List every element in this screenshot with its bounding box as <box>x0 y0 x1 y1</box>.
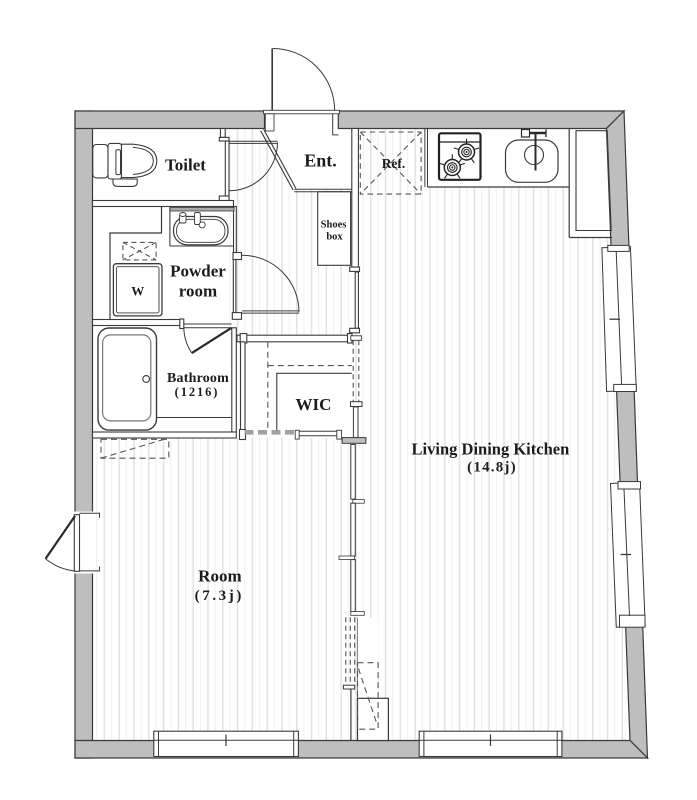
svg-text:Toilet: Toilet <box>165 156 206 175</box>
svg-text:WIC: WIC <box>296 395 332 414</box>
svg-text:Living Dining Kitchen: Living Dining Kitchen <box>412 440 570 459</box>
svg-text:Ref.: Ref. <box>382 156 406 171</box>
svg-text:(14.8j): (14.8j) <box>467 460 517 476</box>
svg-text:Bathroom: Bathroom <box>167 371 229 386</box>
svg-text:(1216): (1216) <box>175 385 220 399</box>
svg-text:room: room <box>179 282 217 301</box>
svg-text:Room: Room <box>198 567 241 586</box>
svg-text:Powder: Powder <box>170 262 226 281</box>
svg-text:W: W <box>131 284 144 299</box>
svg-text:box: box <box>326 232 343 243</box>
svg-text:Shoes: Shoes <box>321 220 347 231</box>
svg-text:(7.3j): (7.3j) <box>195 588 244 604</box>
svg-text:Ent.: Ent. <box>304 151 337 171</box>
